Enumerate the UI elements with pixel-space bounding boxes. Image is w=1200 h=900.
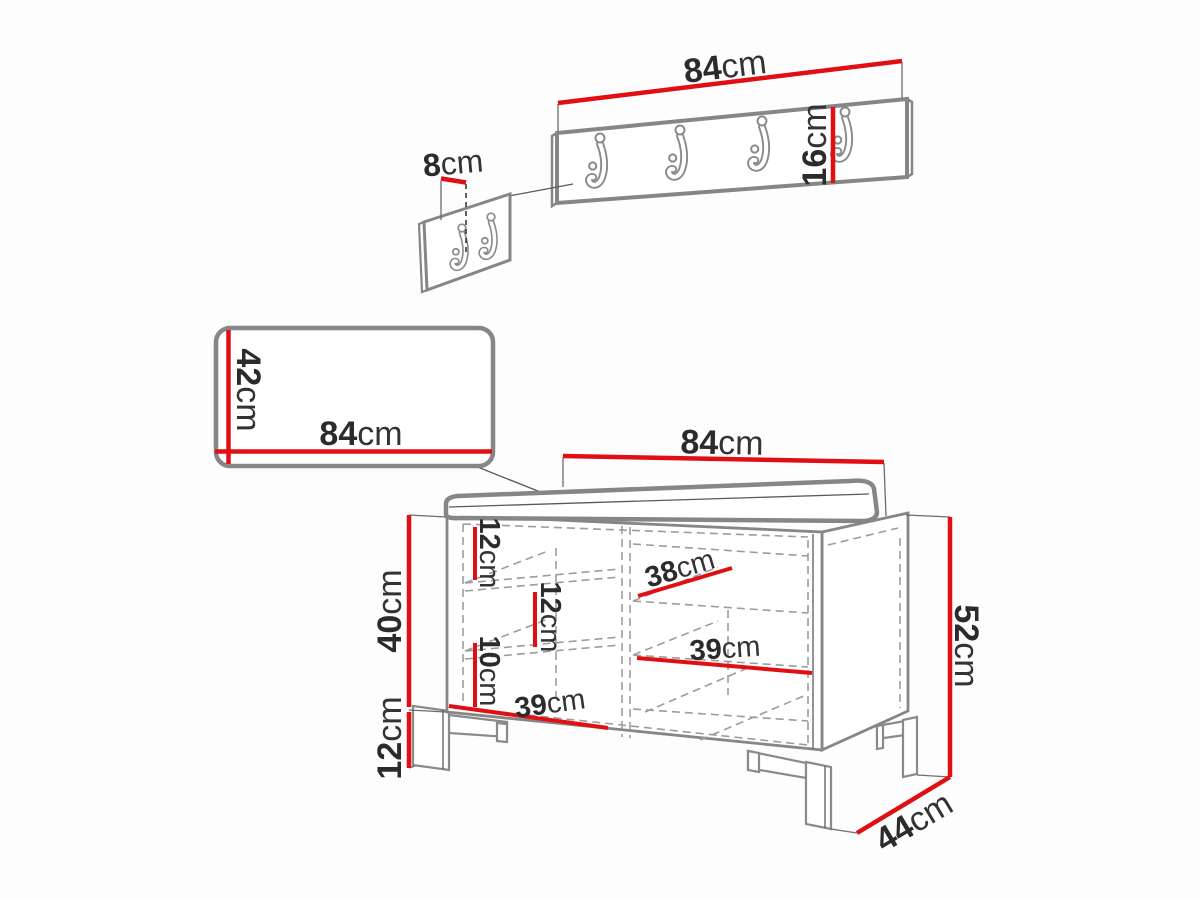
- dim-bench-leg-height: 12cm: [371, 696, 409, 779]
- bench-leg-front-right: [748, 751, 831, 829]
- dim-shelf-gap-bottom: 10cm: [473, 636, 505, 707]
- dim-shelf-gap-mid: 12cm: [534, 582, 566, 653]
- dim-bench-width: 84cm: [680, 423, 764, 462]
- mirror-panel: 42cm 84cm: [215, 328, 493, 466]
- bench-cushion: [446, 481, 877, 521]
- furniture-dimension-diagram: 84cm 16cm 8cm 42cm 84cm: [0, 0, 1200, 900]
- dim-shelf-gap-top: 12cm: [473, 518, 505, 589]
- dim-shelf-width-39-right: 39cm: [689, 631, 762, 668]
- dim-bench-depth: 44cm: [869, 784, 960, 859]
- bench-side-face: [822, 513, 908, 750]
- dim-bench-total-height: 52cm: [947, 604, 985, 687]
- bench-leg-back-right: [877, 717, 917, 777]
- dim-mirror-height: 42cm: [229, 348, 267, 431]
- dim-hook-spacing: 8cm: [421, 142, 484, 183]
- dim-bench-body-height: 40cm: [371, 569, 409, 652]
- hook-detail-panel: [419, 194, 510, 292]
- wall-hanger-panel: [552, 99, 912, 206]
- dim-hanger-height: 16cm: [796, 103, 834, 186]
- diagram-canvas: 84cm 16cm 8cm 42cm 84cm: [0, 0, 1200, 900]
- dim-mirror-width: 84cm: [319, 415, 402, 453]
- dim-hanger-width: 84cm: [681, 43, 768, 91]
